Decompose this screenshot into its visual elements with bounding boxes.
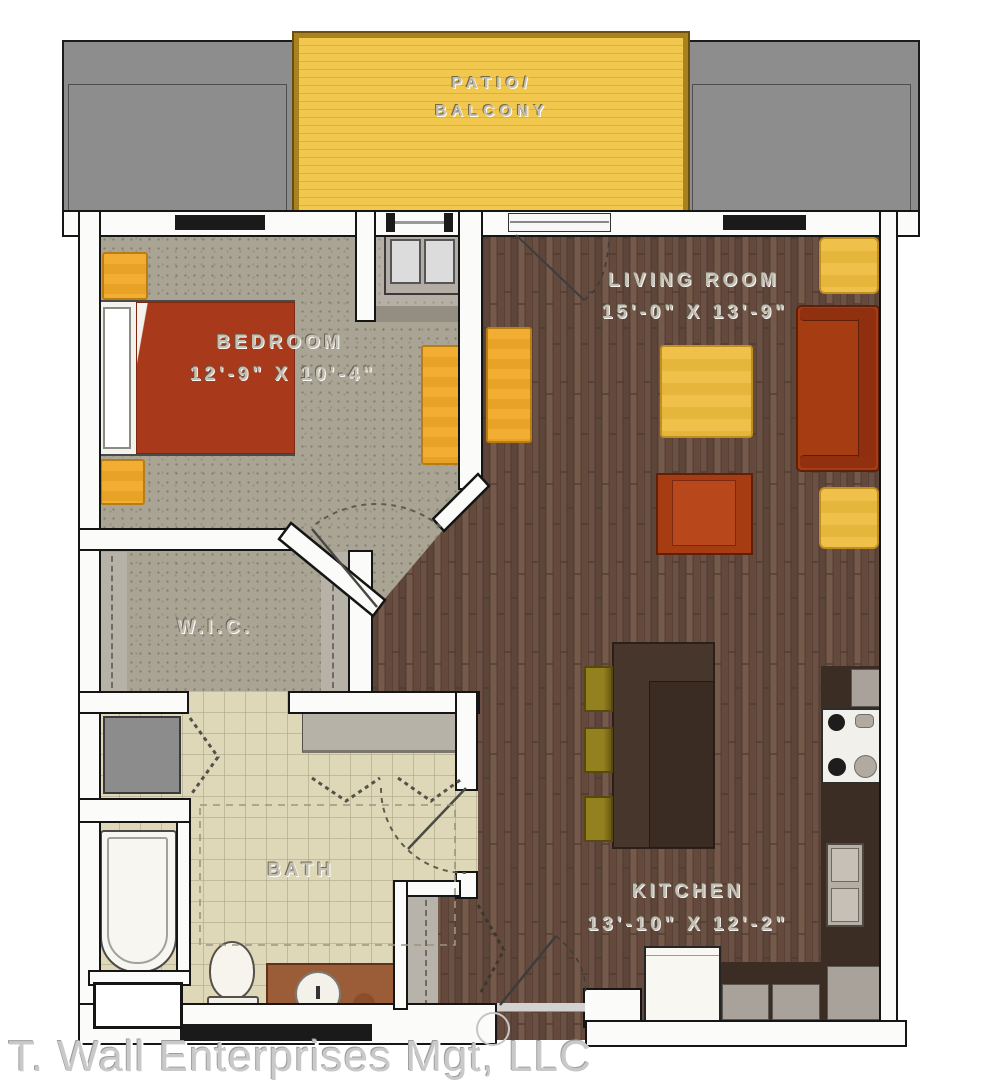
wall-bedroom-diagonal: [279, 523, 385, 616]
wall-upper-diagonal: [433, 474, 489, 531]
bath-label: BATH: [267, 860, 334, 882]
entry-door-leaf: [500, 936, 556, 1005]
bedroom-door-arc: [312, 504, 441, 527]
patio-door-arc: [584, 237, 609, 300]
bath-door-leaf: [408, 788, 466, 849]
patio-label-line2: BALCONY: [435, 103, 549, 121]
living-room-label: LIVING ROOM: [608, 270, 780, 292]
entry-door-arc: [556, 936, 585, 996]
bedroom-dimensions: 12'-9" X 10'-4": [190, 364, 376, 386]
patio-door-leaf: [516, 235, 584, 300]
door-swing-layer: [0, 0, 991, 1080]
floor-plan: PATIO/ BALCONY BEDROOM 12'-9" X 10'-4" L…: [0, 0, 991, 1080]
wic-label: W.I.C.: [177, 617, 253, 639]
vanity-bifold-left: [312, 778, 380, 801]
coat-closet-bifold: [478, 905, 504, 994]
patio-label-line1: PATIO/: [452, 75, 533, 93]
bedroom-label: BEDROOM: [216, 332, 343, 354]
kitchen-dimensions: 13'-10" X 12'-2": [588, 914, 789, 936]
vanity-bifold-right: [398, 778, 463, 801]
watermark: T. Wall Enterprises Mgt, LLC: [8, 1032, 592, 1080]
living-room-dimensions: 15'-0" X 13'-9": [602, 302, 788, 324]
laundry-bifold-door: [190, 718, 218, 796]
kitchen-label: KITCHEN: [632, 881, 744, 903]
